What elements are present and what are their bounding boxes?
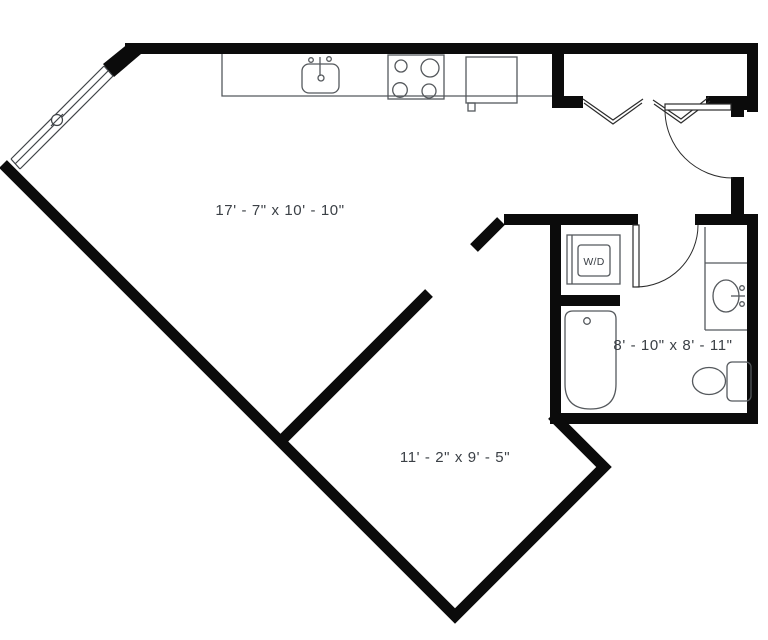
toilet-bowl — [693, 368, 726, 395]
wall-entry-stub — [731, 177, 744, 216]
stove-burner-tr — [421, 59, 439, 77]
wall-bath-left — [550, 219, 561, 424]
vanity-sink — [705, 227, 747, 330]
floor-plan: 17' - 7" x 10' - 10" 11' - 2" x 9' - 5" … — [0, 0, 768, 640]
window-outer-line — [11, 66, 104, 159]
washer-dryer-label: W/D — [583, 256, 604, 268]
walls — [3, 43, 758, 616]
wall-outer-diagonals — [3, 164, 604, 616]
bathtub-drain — [584, 318, 591, 325]
toilet — [693, 362, 752, 401]
wall-bedroom-door-wedge — [474, 221, 501, 248]
kitchen-fixtures — [222, 54, 552, 111]
kitchen-faucet-handle-right — [327, 57, 332, 62]
bathtub-outline — [565, 311, 616, 409]
bathtub — [565, 311, 616, 409]
wall-top — [125, 43, 758, 54]
wall-wd-stub — [561, 295, 620, 306]
bathroom-dimensions-label: 8' - 10" x 8' - 11" — [613, 337, 732, 354]
kitchen-counter — [222, 54, 552, 96]
wall-closet-jamb — [564, 96, 583, 108]
stove-burner-bl — [393, 83, 408, 98]
entry-door-leaf — [665, 104, 731, 110]
bathroom-door-leaf — [633, 225, 639, 287]
entry-door-arc — [665, 110, 733, 178]
bathroom-door-arc — [636, 225, 698, 287]
kitchen-faucet-handle-left — [309, 58, 314, 63]
wall-right-lower — [747, 214, 758, 424]
vanity-faucet-handle-bottom — [740, 302, 745, 307]
vanity-faucet-handle-top — [740, 286, 745, 291]
wall-entry-hinge-block — [731, 104, 744, 117]
wall-hall-top — [504, 214, 638, 225]
wall-bath-bottom — [550, 413, 758, 424]
bedroom-dimensions-label: 11' - 2" x 9' - 5" — [400, 449, 510, 466]
bathroom-fixtures — [565, 227, 751, 409]
wall-closet-divider — [552, 54, 564, 108]
doors — [583, 97, 733, 287]
bathroom-door — [633, 225, 698, 287]
wall-bedroom-interior — [281, 293, 429, 441]
living-kitchen-dimensions-label: 17' - 7" x 10' - 10" — [215, 202, 344, 219]
window-wall — [11, 66, 113, 169]
window-inner-line — [20, 76, 113, 169]
stove-burner-tl — [395, 60, 407, 72]
refrigerator-foot — [468, 103, 475, 111]
kitchen-sink-drain — [318, 75, 324, 81]
floor-plan-svg: 17' - 7" x 10' - 10" 11' - 2" x 9' - 5" … — [0, 0, 768, 640]
